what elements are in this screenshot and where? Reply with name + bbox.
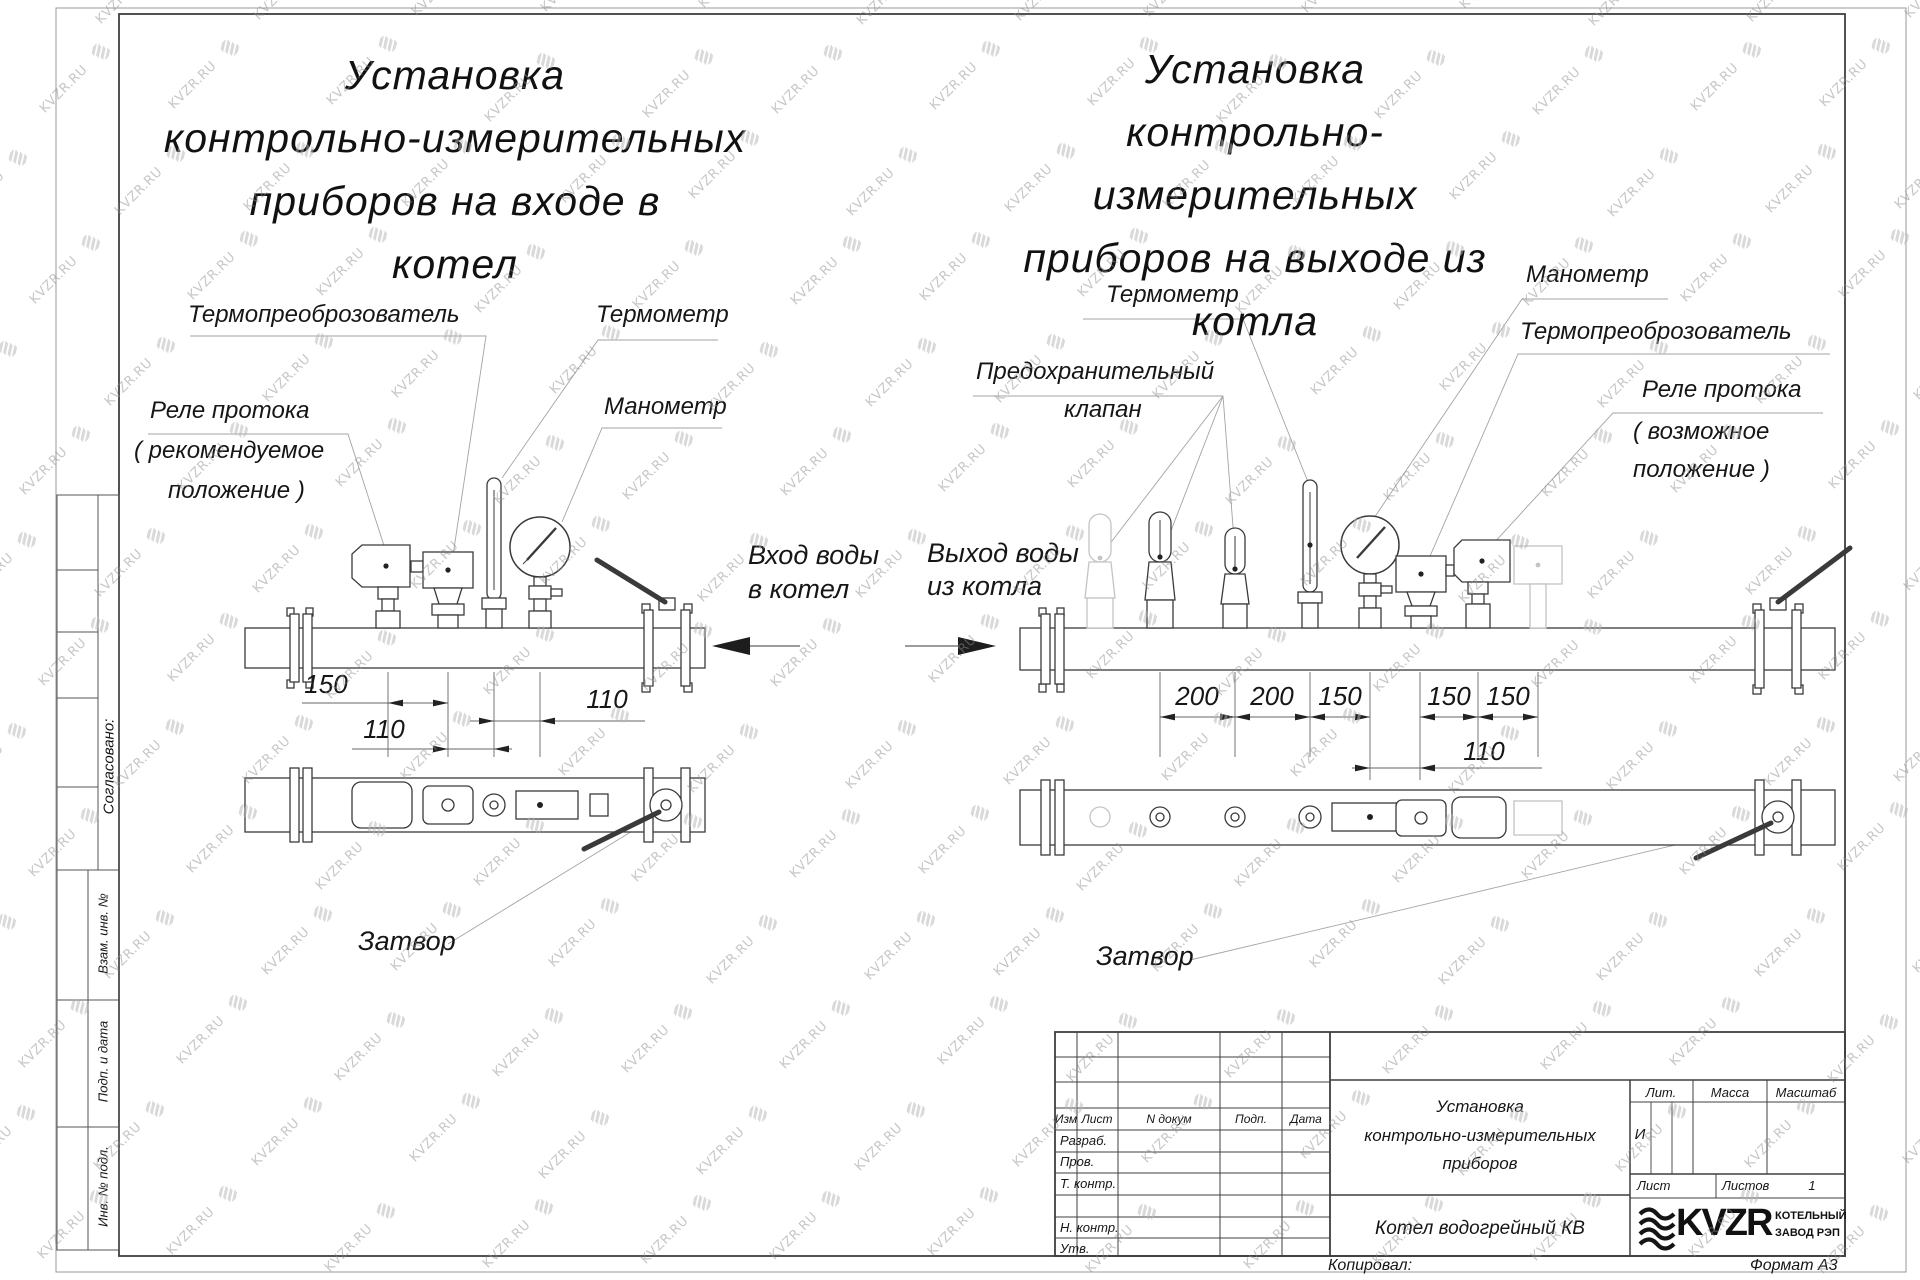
dim-right-150b: 150 <box>1427 681 1470 712</box>
tb-row-ncontrol: Н. контр. <box>1060 1220 1119 1235</box>
tb-doc-name-line3: приборов <box>1442 1154 1517 1174</box>
tb-sheets-label: Листов <box>1722 1178 1769 1193</box>
tb-row-developed: Разраб. <box>1060 1133 1107 1148</box>
right-title-line3: приборов на выходе из <box>1005 227 1505 290</box>
dim-right-150a: 150 <box>1318 681 1361 712</box>
tb-doc-name-line2: контрольно-измерительных <box>1364 1126 1595 1146</box>
tb-lit-value: И <box>1635 1126 1646 1143</box>
label-thermometer-left: Термометр <box>596 301 729 329</box>
right-title-line1: Установка <box>1005 38 1505 101</box>
left-view-title: Установка контрольно-измерительных прибо… <box>125 44 785 296</box>
tb-copied-label: Копировал: <box>1328 1257 1412 1275</box>
label-flow-relay-left: Реле протока <box>150 397 310 425</box>
label-thermometer-right: Термометр <box>1106 281 1239 309</box>
dim-right-200b: 200 <box>1250 681 1293 712</box>
dim-left-110b: 110 <box>363 714 404 745</box>
label-safety-valve-line1: Предохранительный <box>976 358 1214 386</box>
tb-sheets-value: 1 <box>1808 1178 1815 1193</box>
tb-header-sheet: Лист <box>1082 1112 1113 1126</box>
tb-product-name: Котел водогрейный КВ <box>1375 1218 1585 1240</box>
sidebar-agreed: Согласовано: <box>101 657 118 877</box>
tb-mass-label: Масса <box>1711 1085 1749 1100</box>
tb-header-date: Дата <box>1290 1112 1322 1126</box>
tb-sheet-label: Лист <box>1637 1178 1670 1193</box>
left-title-line4: котел <box>125 233 785 296</box>
kvzr-org-line2: ЗАВОД РЭП <box>1775 1227 1840 1239</box>
tb-scale-label: Масштаб <box>1776 1085 1837 1100</box>
label-valve-left: Затвор <box>358 926 456 957</box>
dim-left-110a: 110 <box>586 684 627 715</box>
tb-format-label: Формат А3 <box>1750 1257 1838 1275</box>
dim-left-150: 150 <box>304 669 347 700</box>
kvzr-logo-text: KVZR <box>1676 1202 1771 1245</box>
tb-doc-name-line1: Установка <box>1436 1097 1524 1117</box>
sidebar-inventory: Инв. № подл. <box>96 1107 111 1267</box>
kvzr-org-line1: КОТЕЛЬНЫЙ <box>1775 1210 1847 1222</box>
label-thermo-transducer-left: Термопреоброзователь <box>188 301 460 329</box>
left-title-line2: контрольно-измерительных <box>125 107 785 170</box>
label-pressure-gauge-right: Манометр <box>1526 261 1649 289</box>
tb-header-doc: N докум <box>1146 1112 1191 1126</box>
label-flow-relay-note1-left: ( рекомендуемое <box>134 437 324 465</box>
left-title-line1: Установка <box>125 44 785 107</box>
label-pressure-gauge-left: Манометр <box>604 393 727 421</box>
label-flow-out-line1: Выход воды <box>927 538 1079 569</box>
label-safety-valve-line2: клапан <box>1064 396 1142 424</box>
left-title-line3: приборов на входе в <box>125 170 785 233</box>
label-flow-relay-right: Реле протока <box>1642 376 1802 404</box>
right-view-title: Установка контрольно-измерительных прибо… <box>1005 38 1505 353</box>
dim-right-110: 110 <box>1463 736 1504 767</box>
tb-row-approved: Утв. <box>1060 1241 1090 1256</box>
drawing-sheet: Установка контрольно-измерительных прибо… <box>0 0 1920 1280</box>
right-title-line4: котла <box>1005 290 1505 353</box>
tb-lit-label: Лит. <box>1646 1085 1676 1100</box>
dim-right-150c: 150 <box>1486 681 1529 712</box>
label-valve-right: Затвор <box>1096 941 1194 972</box>
tb-row-checked: Пров. <box>1060 1154 1094 1169</box>
label-flow-relay-note2-left: положение ) <box>168 477 305 505</box>
label-flow-relay-note1-right: ( возможное <box>1633 418 1769 446</box>
tb-header-sign: Подп. <box>1235 1112 1267 1126</box>
label-flow-in-line2: в котел <box>748 574 849 605</box>
label-thermo-transducer-right: Термопреоброзователь <box>1520 318 1792 346</box>
tb-header-izm: Изм <box>1055 1112 1077 1126</box>
label-flow-in-line1: Вход воды <box>748 540 879 571</box>
label-flow-out-line2: из котла <box>927 571 1042 602</box>
right-title-line2: контрольно-измерительных <box>1005 101 1505 227</box>
annotations: Установка контрольно-измерительных прибо… <box>0 0 1920 1280</box>
label-flow-relay-note2-right: положение ) <box>1633 456 1770 484</box>
dim-right-200a: 200 <box>1175 681 1218 712</box>
tb-row-tcontrol: Т. контр. <box>1060 1176 1116 1191</box>
